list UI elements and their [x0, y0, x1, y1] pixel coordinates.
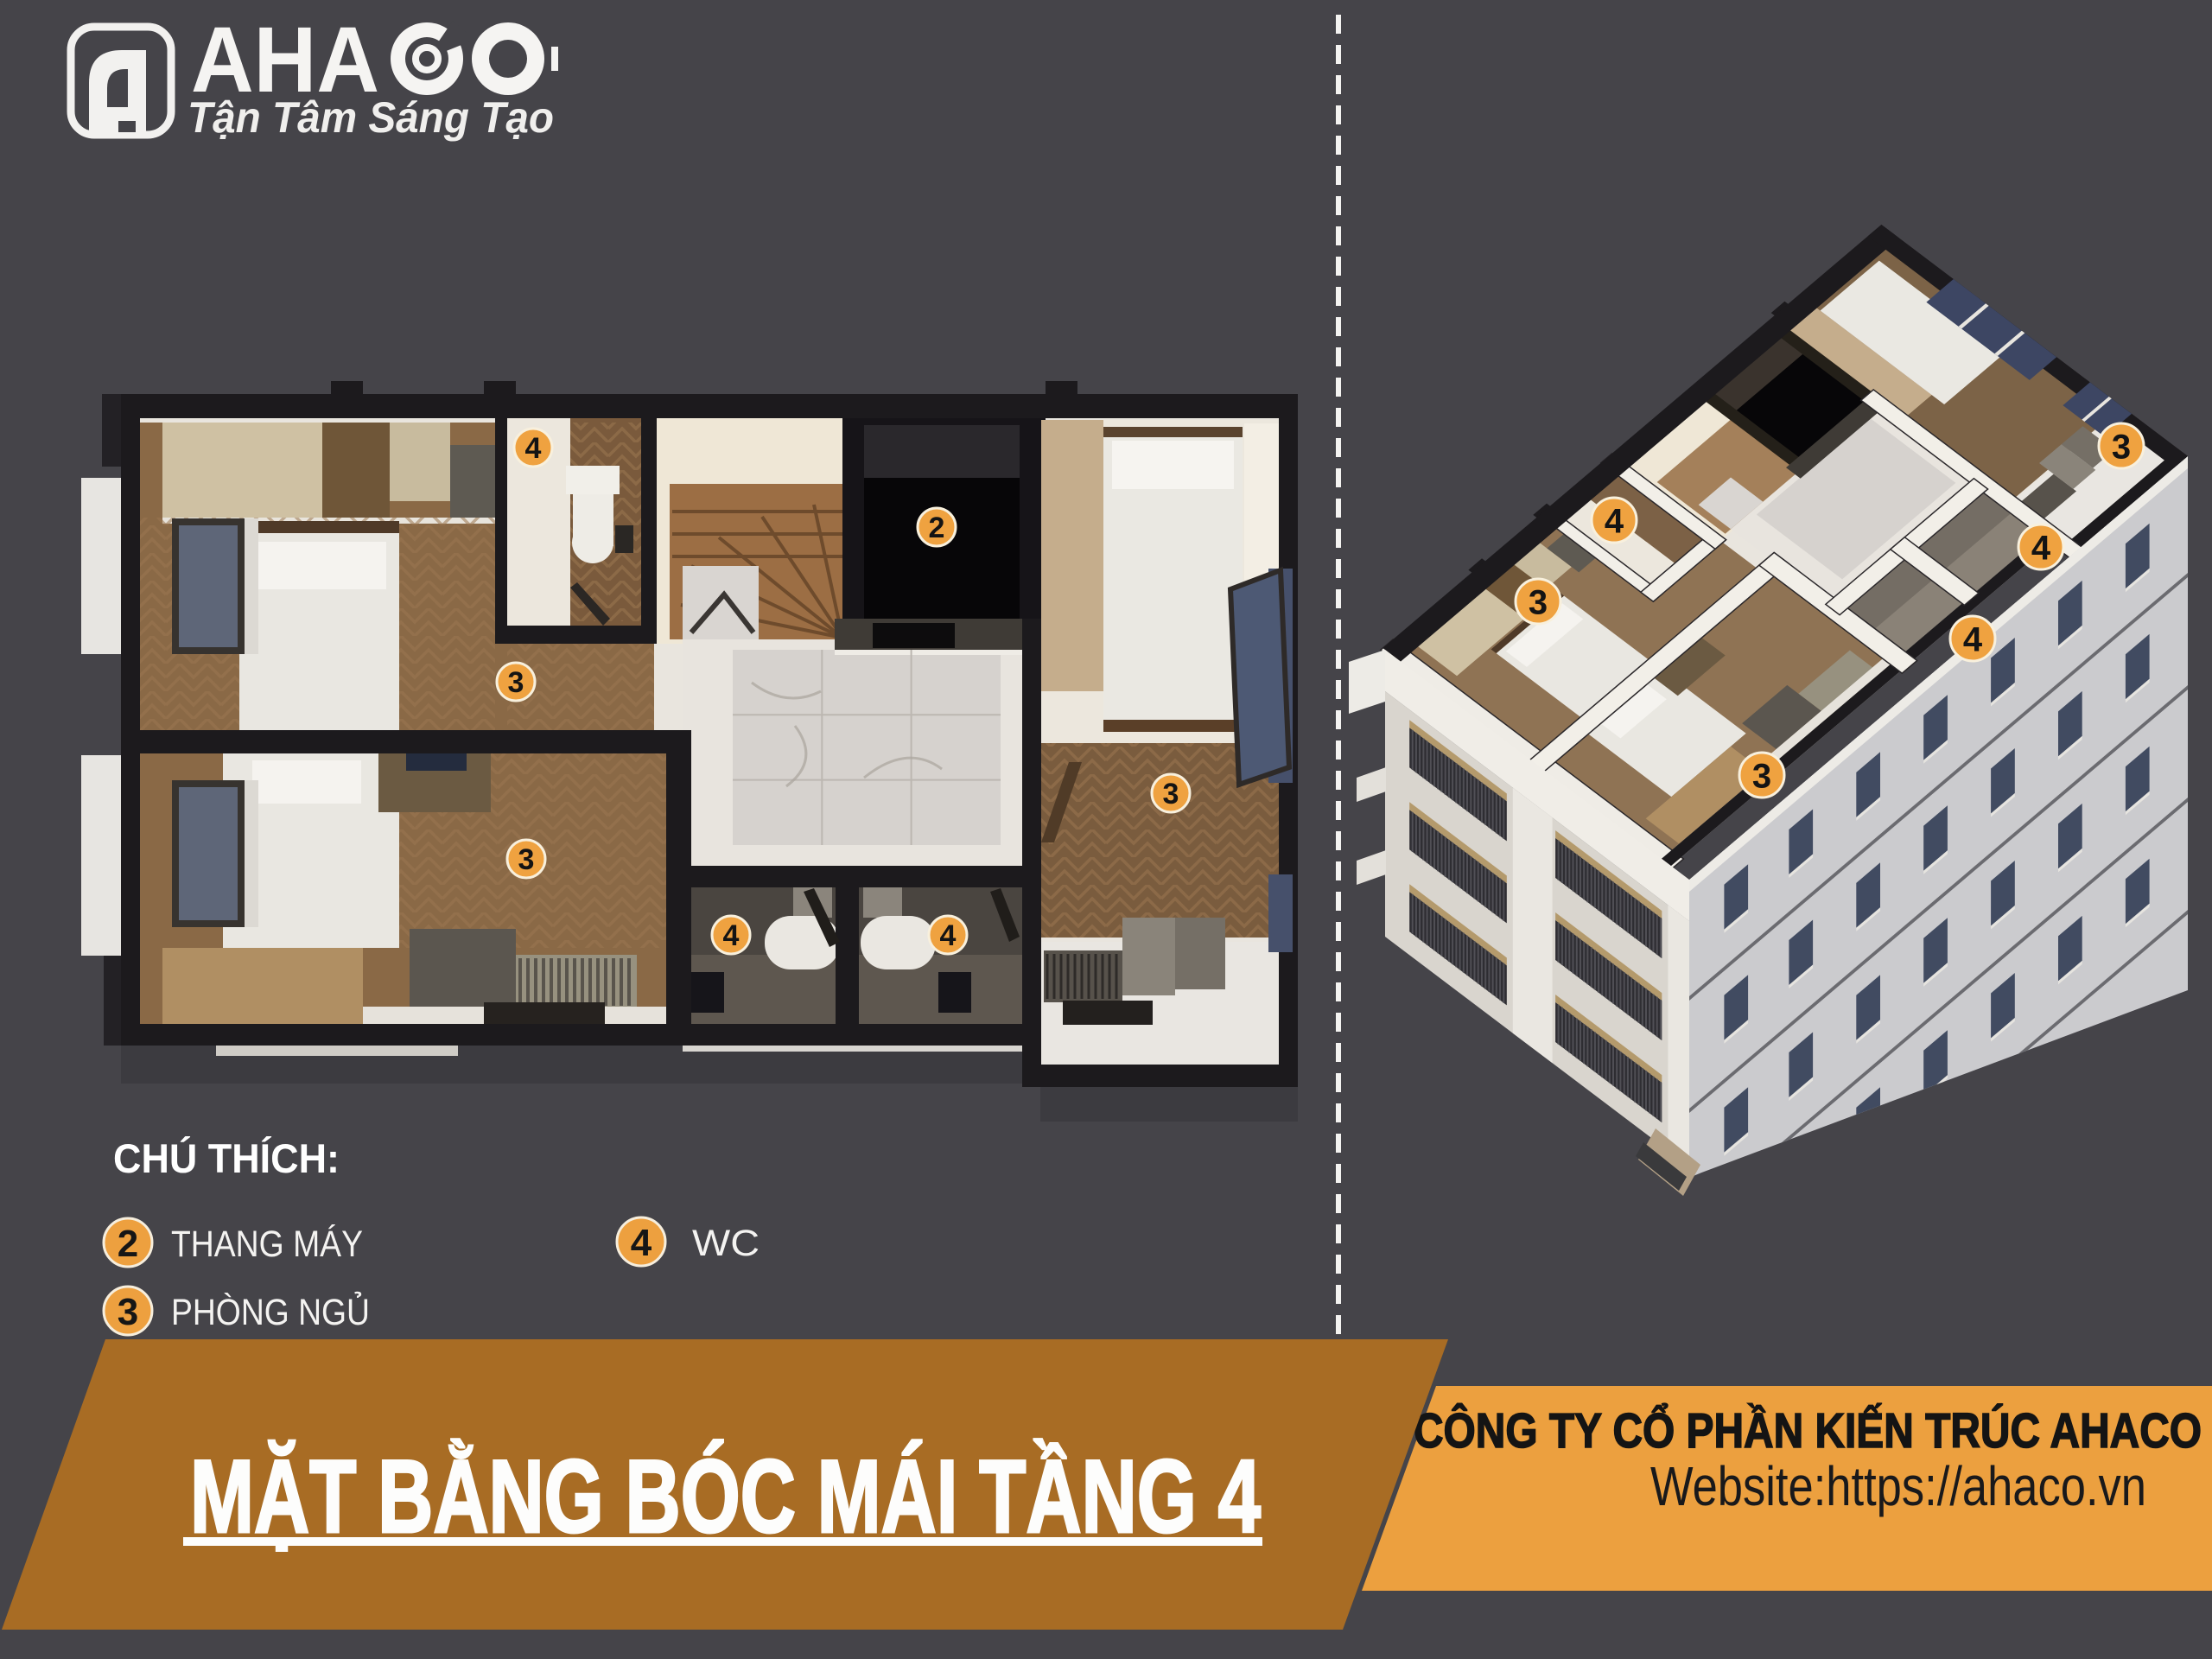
svg-text:CHÚ THÍCH:: CHÚ THÍCH:: [113, 1135, 340, 1181]
svg-text:4: 4: [2031, 529, 2051, 567]
svg-text:3: 3: [518, 843, 535, 876]
svg-text:3: 3: [1752, 757, 1771, 795]
svg-text:WC: WC: [692, 1223, 760, 1264]
svg-text:3: 3: [118, 1291, 138, 1333]
svg-text:4: 4: [723, 919, 740, 952]
svg-text:4: 4: [1605, 502, 1624, 540]
svg-text:MẶT BẰNG BÓC MÁI TẦNG 4: MẶT BẰNG BÓC MÁI TẦNG 4: [190, 1439, 1261, 1554]
svg-text:4: 4: [940, 919, 957, 952]
svg-text:3: 3: [508, 666, 524, 699]
svg-text:CÔNG TY CỔ PHẦN KIẾN TRÚC AHAC: CÔNG TY CỔ PHẦN KIẾN TRÚC AHACO: [1414, 1402, 2202, 1459]
svg-text:Website:https://ahaco.vn: Website:https://ahaco.vn: [1650, 1455, 2146, 1517]
svg-text:PHÒNG NGỦ: PHÒNG NGỦ: [171, 1291, 370, 1333]
svg-text:3: 3: [2112, 428, 2131, 466]
svg-text:2: 2: [118, 1223, 138, 1265]
svg-text:Tận Tâm Sáng Tạo: Tận Tâm Sáng Tạo: [188, 93, 554, 142]
svg-text:4: 4: [525, 432, 542, 465]
svg-text:3: 3: [1529, 583, 1548, 621]
svg-text:4: 4: [631, 1222, 652, 1264]
svg-text:THANG MÁY: THANG MÁY: [171, 1224, 363, 1265]
svg-text:2: 2: [929, 512, 945, 544]
svg-text:3: 3: [1163, 778, 1179, 810]
svg-text:4: 4: [1963, 620, 1983, 658]
